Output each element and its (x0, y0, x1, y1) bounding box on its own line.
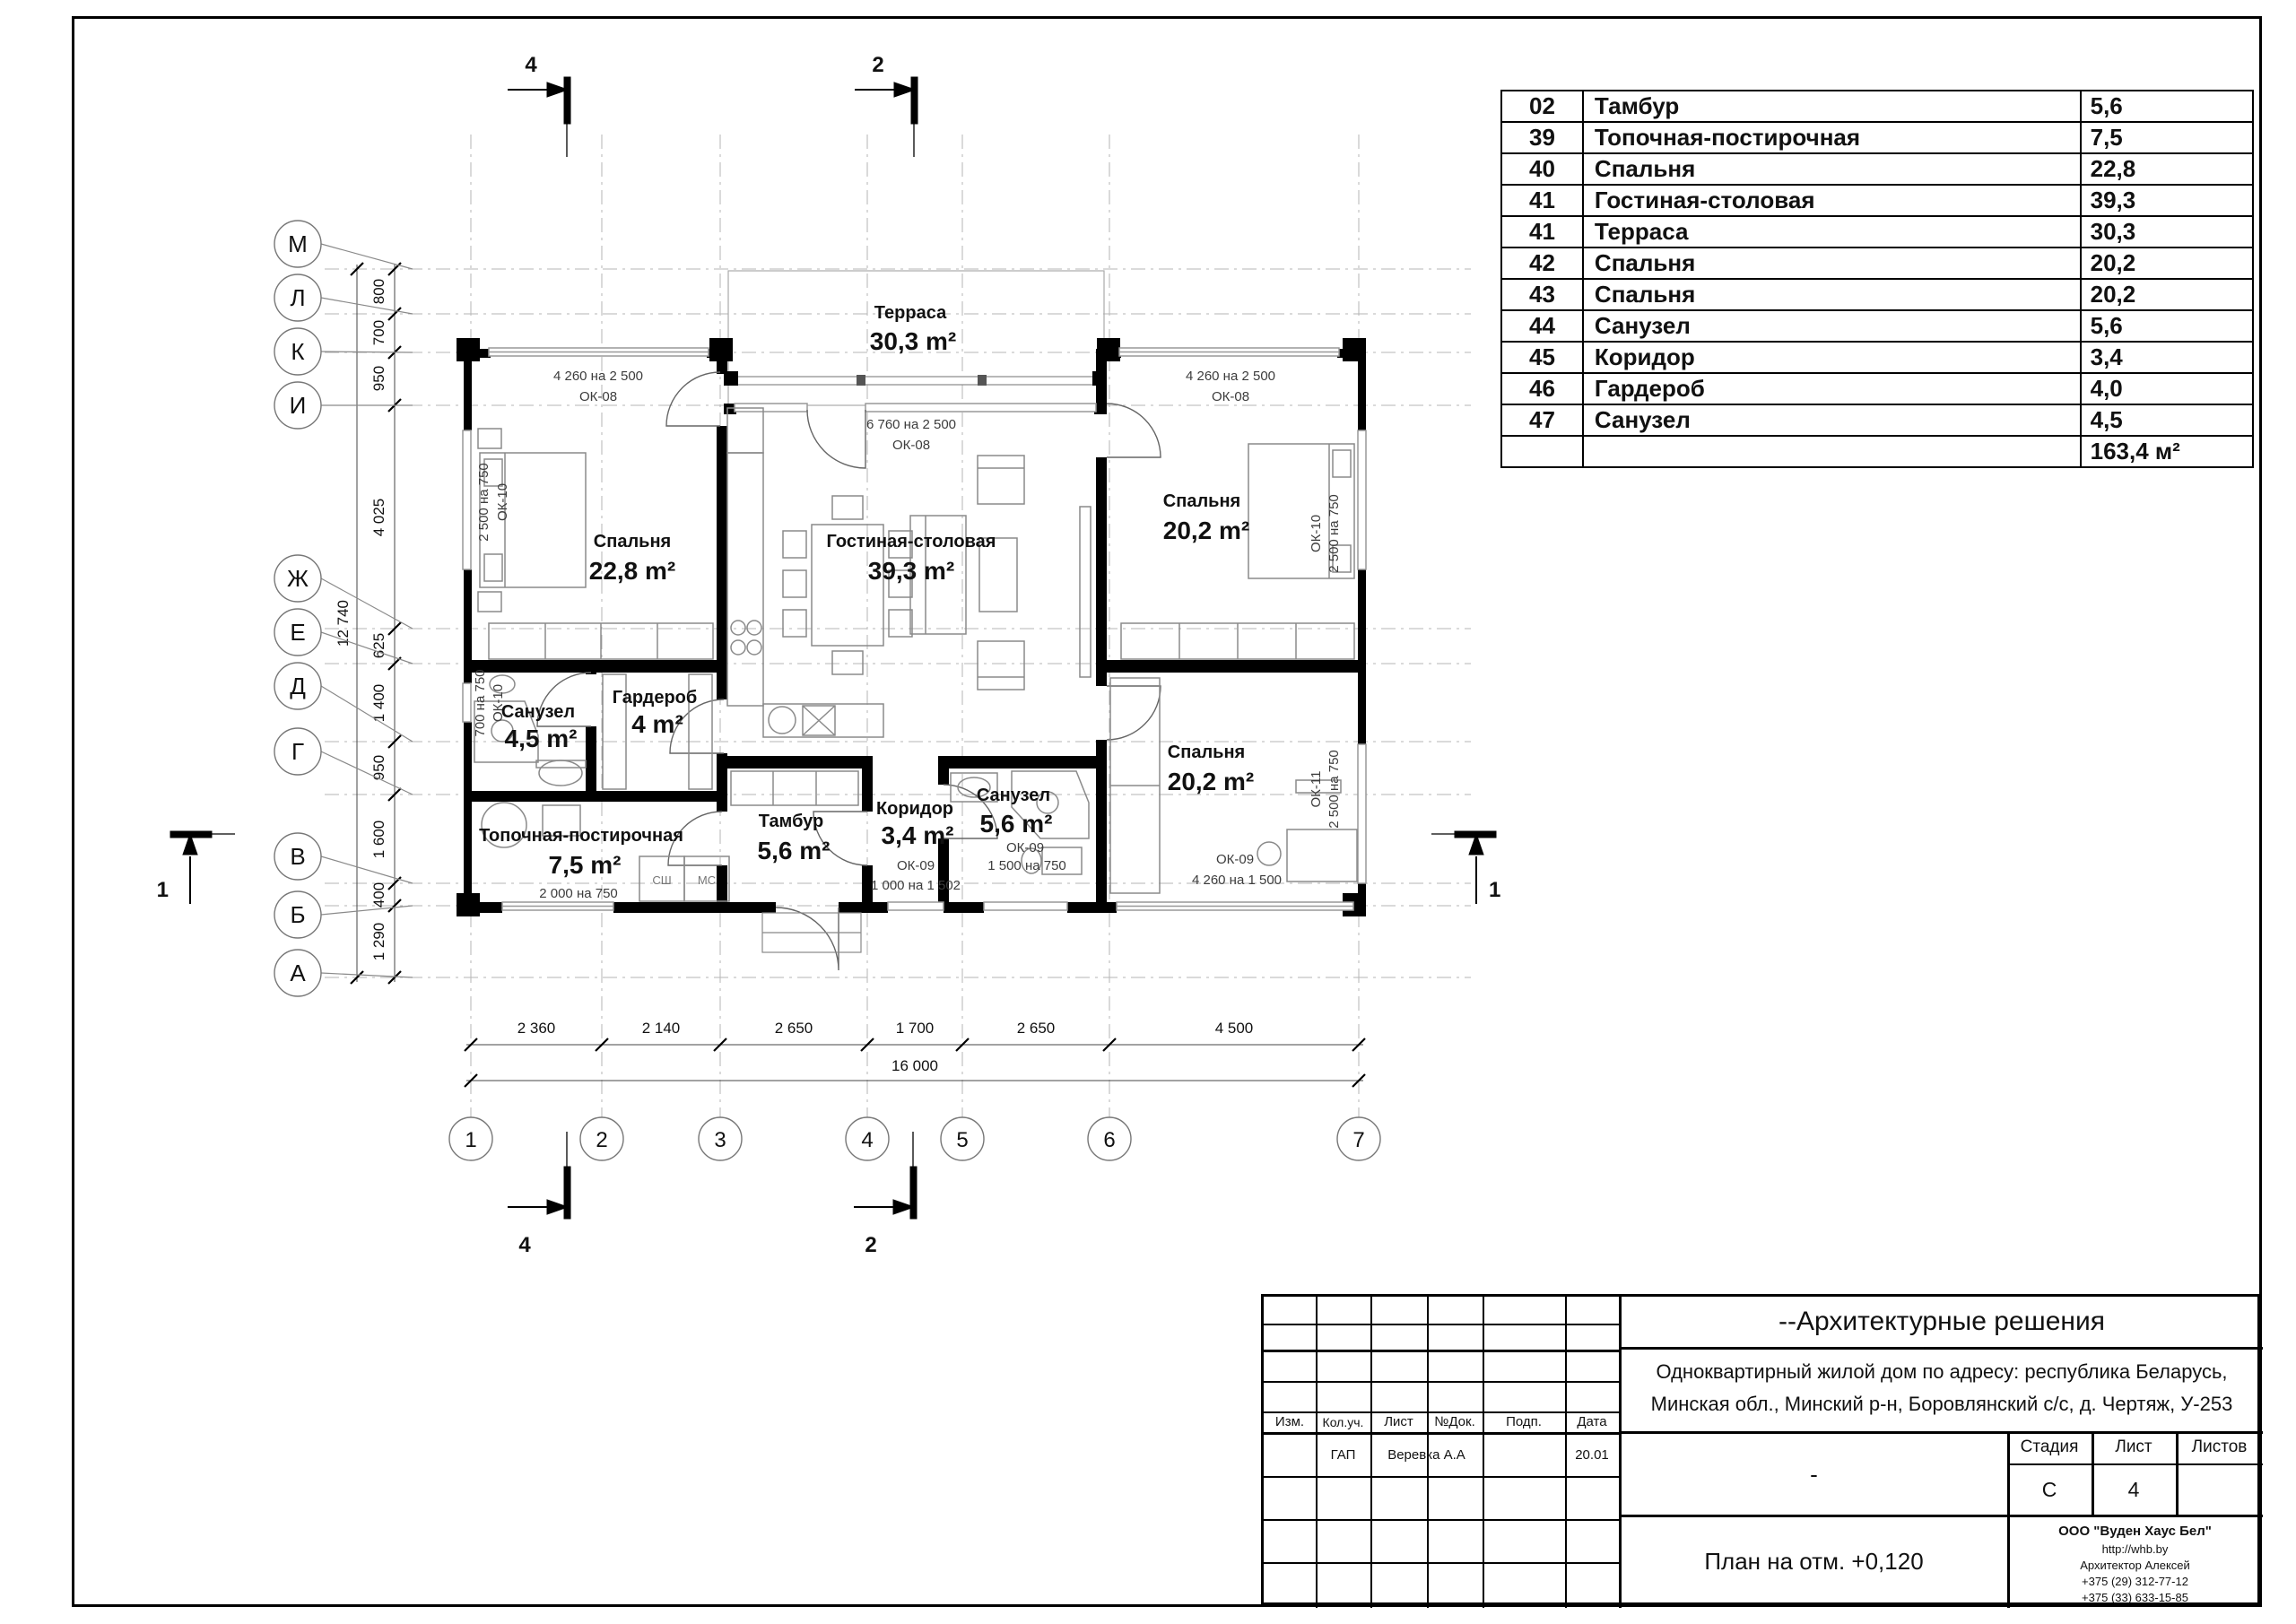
table-row: 40Спальня22,8 (1501, 153, 2253, 185)
table-row: 44Санузел5,6 (1501, 310, 2253, 342)
table-row: 39Топочная-постирочная7,5 (1501, 122, 2253, 153)
window-w9-code: ОК-09 (1216, 852, 1254, 867)
window-w11-size: 2 500 на 750 (1326, 750, 1342, 829)
room-bedroom3-area: 20,2 m² (1168, 768, 1255, 795)
room-num: 39 (1501, 122, 1583, 153)
window-w3-size: 4 260 на 2 500 (1186, 369, 1275, 384)
room-living-name: Гостиная-столовая (827, 532, 996, 551)
section-marker-left: 1 (157, 878, 169, 902)
section-marker-top-right: 2 (872, 53, 883, 77)
axis-letter-zh: Ж (287, 565, 309, 592)
title-block: Изм. Кол.уч. Лист №Док. Подп. Дата ГАП В… (1261, 1294, 2260, 1605)
room-bath1-area: 4,5 m² (505, 725, 578, 752)
room-num: 45 (1501, 342, 1583, 373)
stage-label: Стадия (2007, 1431, 2092, 1463)
room-area: 22,8 (2081, 153, 2253, 185)
room-terrace-area: 30,3 m² (870, 327, 957, 355)
room-bedroom3-name: Спальня (1168, 743, 1245, 762)
dim-left-5: 1 400 (370, 684, 387, 723)
grid-lines (325, 135, 1471, 1117)
room-bedroom1-area: 22,8 m² (589, 557, 676, 585)
room-area: 4,5 (2081, 404, 2253, 436)
col-data: Дата (1565, 1411, 1619, 1432)
section-markers: 4 2 4 2 1 1 (157, 53, 1501, 1257)
room-living-area: 39,3 m² (868, 557, 955, 585)
window-w1-size: 4 260 на 2 500 (553, 369, 643, 384)
room-tambour-area: 5,6 m² (758, 837, 831, 864)
room-num: 41 (1501, 185, 1583, 216)
window-w4-code: ОК-10 (495, 483, 510, 521)
total-area: 163,4 м² (2081, 436, 2253, 467)
axis-letter-m: М (288, 230, 308, 257)
room-name: Топочная-постирочная (1583, 122, 2081, 153)
room-wardrobe-area: 4 m² (631, 710, 683, 738)
room-bedroom1-name: Спальня (594, 532, 671, 551)
axis-number-1: 1 (465, 1128, 476, 1152)
drawing-sheet: СШ МС Терраса 30,3 m² Спальня 22,8 m² Го… (0, 0, 2296, 1624)
room-area: 7,5 (2081, 122, 2253, 153)
table-row: 43Спальня20,2 (1501, 279, 2253, 310)
dim-bottom-total: 16 000 (891, 1057, 938, 1074)
company-website: http://whb.by (2007, 1541, 2263, 1557)
room-num: 47 (1501, 404, 1583, 436)
window-w6-size: 2 000 на 750 (539, 886, 618, 901)
sheets-label: Листов (2176, 1431, 2263, 1463)
room-bath1-name: Санузел (501, 702, 575, 722)
axis-letter-b: Б (290, 901, 305, 928)
drawing-title: План на отм. +0,120 (1621, 1515, 2007, 1608)
room-area: 3,4 (2081, 342, 2253, 373)
section-marker-right: 1 (1489, 878, 1500, 902)
furniture (474, 408, 1357, 893)
table-row: 41Гостиная-столовая39,3 (1501, 185, 2253, 216)
axis-number-3: 3 (714, 1128, 726, 1152)
project-address-line2: Минская обл., Минский р-н, Боровлянский … (1621, 1386, 2263, 1422)
room-corridor-area: 3,4 m² (882, 821, 954, 849)
dim-left-6: 950 (370, 755, 387, 780)
section-marker-top-left: 4 (525, 53, 537, 77)
dim-bottom-3: 1 700 (896, 1020, 935, 1037)
stage-value: С (2007, 1465, 2092, 1515)
window-w7-size: 1 000 на 1 502 (871, 878, 961, 893)
sheet-value: 4 (2092, 1465, 2176, 1515)
company-name: ООО "Вуден Хаус Бел" (2007, 1521, 2263, 1541)
axis-letter-e: Е (290, 619, 305, 646)
dim-left-0: 800 (370, 279, 387, 304)
dim-bottom-2: 2 650 (775, 1020, 813, 1037)
col-list: Лист (1370, 1411, 1427, 1432)
room-bedroom2-area: 20,2 m² (1163, 517, 1250, 544)
room-area: 20,2 (2081, 248, 2253, 279)
sheet-label: Лист (2092, 1431, 2176, 1463)
room-num: 41 (1501, 216, 1583, 248)
table-row: 42Спальня20,2 (1501, 248, 2253, 279)
author-name: Веревка А.А (1370, 1435, 1483, 1474)
window-w5-size: 700 на 750 (473, 669, 488, 736)
room-name: Гостиная-столовая (1583, 185, 2081, 216)
axis-letter-i: И (290, 392, 307, 419)
room-area: 20,2 (2081, 279, 2253, 310)
section-marker-bottom-left: 4 (518, 1233, 531, 1257)
room-num: 02 (1501, 91, 1583, 122)
room-name: Санузел (1583, 310, 2081, 342)
axis-letter-v: В (290, 843, 305, 870)
dim-bottom-1: 2 140 (642, 1020, 681, 1037)
room-name: Спальня (1583, 279, 2081, 310)
table-row-total: 163,4 м² (1501, 436, 2253, 467)
dim-left-7: 1 600 (370, 821, 387, 859)
window-w11-code: ОК-11 (1309, 771, 1324, 808)
col-izm: Изм. (1264, 1411, 1316, 1432)
room-bedroom2-name: Спальня (1163, 491, 1240, 511)
room-name: Терраса (1583, 216, 2081, 248)
room-num: 46 (1501, 373, 1583, 404)
window-w8-code: ОК-09 (1006, 840, 1044, 855)
col-ndok: №Док. (1427, 1411, 1483, 1432)
axis-letter-k: К (291, 338, 304, 365)
room-area: 39,3 (2081, 185, 2253, 216)
table-row: 46Гардероб4,0 (1501, 373, 2253, 404)
section-marker-bottom-right: 2 (865, 1233, 876, 1257)
axis-number-5: 5 (956, 1128, 968, 1152)
room-num: 44 (1501, 310, 1583, 342)
room-area: 4,0 (2081, 373, 2253, 404)
room-name: Тамбур (1583, 91, 2081, 122)
axis-bubbles-numbers: 1 2 3 4 5 6 7 (449, 1117, 1380, 1160)
axis-letter-l: Л (290, 284, 305, 311)
window-w10-size: 2 500 на 750 (1326, 494, 1342, 573)
room-bath2-area: 5,6 m² (980, 810, 1053, 838)
room-tambour-name: Тамбур (759, 812, 824, 831)
axis-number-7: 7 (1352, 1128, 1364, 1152)
room-wardrobe-name: Гардероб (613, 688, 698, 708)
window-w2-size: 6 760 на 2 500 (866, 417, 956, 432)
room-name: Санузел (1583, 404, 2081, 436)
table-row: 41Терраса30,3 (1501, 216, 2253, 248)
room-name: Спальня (1583, 248, 2081, 279)
room-area: 5,6 (2081, 310, 2253, 342)
room-schedule-table: 02Тамбур5,6 39Топочная-постирочная7,5 40… (1500, 90, 2254, 468)
company-phone-1: +375 (29) 312-77-12 (2007, 1573, 2263, 1589)
dim-bottom-4: 2 650 (1017, 1020, 1056, 1037)
washer-label: СШ (652, 873, 671, 887)
dim-left-2: 950 (370, 366, 387, 391)
axis-number-4: 4 (861, 1128, 873, 1152)
table-row: 02Тамбур5,6 (1501, 91, 2253, 122)
axis-letter-g: Г (291, 738, 304, 765)
window-w1-code: ОК-08 (579, 389, 617, 404)
company-phone-2: +375 (33) 633-15-85 (2007, 1589, 2263, 1605)
room-area: 5,6 (2081, 91, 2253, 122)
window-w8-size: 1 500 на 750 (987, 858, 1066, 873)
dim-bottom-0: 2 360 (517, 1020, 556, 1037)
date-value: 20.01 (1565, 1435, 1619, 1474)
axis-number-6: 6 (1103, 1128, 1115, 1152)
col-koluch: Кол.уч. (1316, 1411, 1370, 1432)
doc-type: --Архитектурные решения (1621, 1297, 2263, 1347)
room-name: Коридор (1583, 342, 2081, 373)
room-name: Спальня (1583, 153, 2081, 185)
room-terrace-name: Терраса (874, 303, 947, 323)
axis-letter-d: Д (290, 673, 306, 699)
role-gap: ГАП (1316, 1435, 1370, 1474)
dim-bottom-5: 4 500 (1215, 1020, 1254, 1037)
table-row: 47Санузел4,5 (1501, 404, 2253, 436)
window-w2-code: ОК-08 (892, 438, 930, 453)
room-num: 43 (1501, 279, 1583, 310)
dim-left-3: 4 025 (370, 499, 387, 537)
room-num: 40 (1501, 153, 1583, 185)
room-bath2-name: Санузел (977, 786, 1050, 805)
room-name: Гардероб (1583, 373, 2081, 404)
company-architect: Архитектор Алексей (2007, 1557, 2263, 1573)
room-boiler-name: Топочная-постирочная (479, 826, 683, 846)
axis-letter-a: А (290, 960, 306, 986)
room-num: 42 (1501, 248, 1583, 279)
room-boiler-area: 7,5 m² (549, 851, 622, 879)
window-w10-code: ОК-10 (1309, 515, 1324, 552)
doc-code-dash: - (1621, 1434, 2007, 1515)
window-w5-code: ОК-10 (491, 684, 506, 722)
room-area: 30,3 (2081, 216, 2253, 248)
window-w3-code: ОК-08 (1212, 389, 1249, 404)
dim-left-1: 700 (370, 320, 387, 345)
room-corridor-name: Коридор (876, 799, 953, 819)
col-podp: Подп. (1483, 1411, 1565, 1432)
empty-cell (1501, 436, 1583, 467)
window-w9-size: 4 260 на 1 500 (1192, 873, 1282, 888)
empty-cell (1583, 436, 2081, 467)
window-w7-code: ОК-09 (897, 858, 935, 873)
axis-number-2: 2 (596, 1128, 607, 1152)
project-address-line1: Одноквартирный жилой дом по адресу: респ… (1621, 1354, 2263, 1390)
table-row: 45Коридор3,4 (1501, 342, 2253, 373)
dim-left-9: 1 290 (370, 923, 387, 961)
window-w4-size: 2 500 на 750 (476, 463, 491, 542)
dryer-label: МС (698, 873, 716, 887)
dim-left-8: 400 (370, 882, 387, 908)
